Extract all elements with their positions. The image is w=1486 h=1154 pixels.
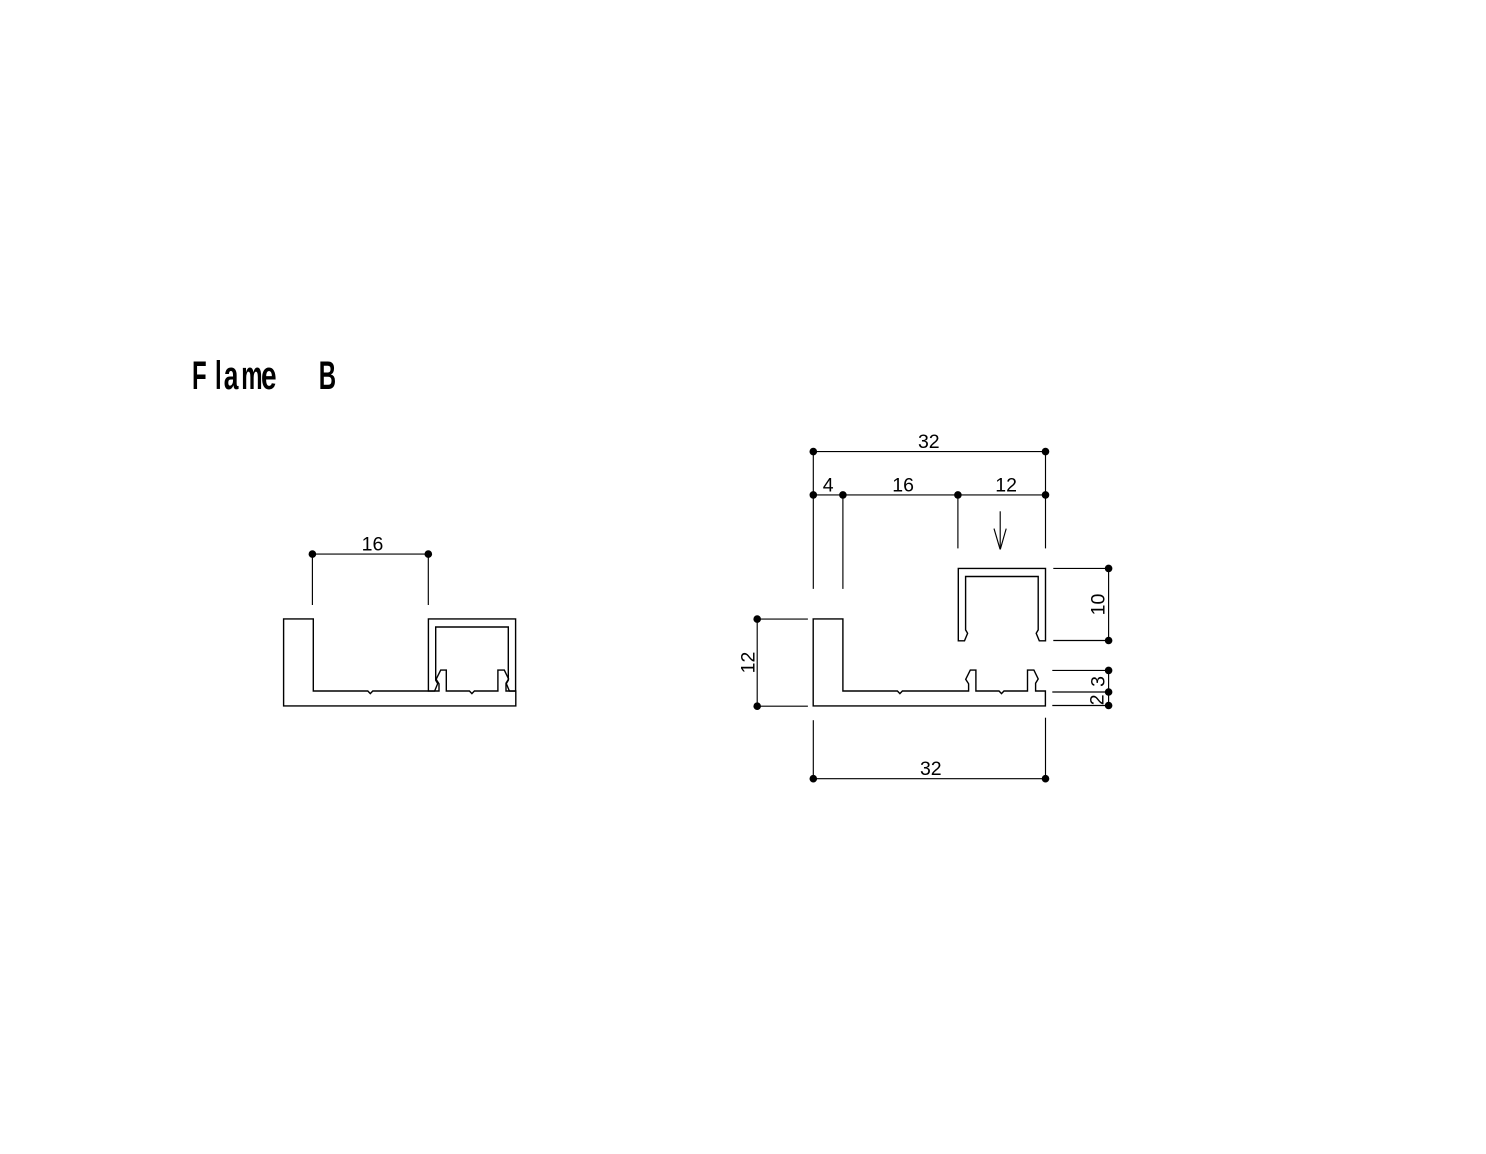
svg-text:16: 16 [362,534,384,556]
svg-text:16: 16 [892,474,914,496]
svg-text:2: 2 [1087,694,1109,705]
svg-text:e: e [261,354,277,398]
svg-text:3: 3 [1088,676,1110,687]
svg-text:a: a [224,354,240,399]
svg-text:12: 12 [737,652,759,674]
svg-text:B: B [319,353,336,398]
svg-text:10: 10 [1088,594,1110,616]
svg-text:12: 12 [995,474,1017,496]
svg-text:l: l [215,353,222,398]
svg-text:32: 32 [920,758,942,780]
svg-text:F: F [192,353,207,398]
svg-text:m: m [241,353,262,398]
svg-text:4: 4 [823,474,834,496]
svg-text:32: 32 [918,431,940,453]
